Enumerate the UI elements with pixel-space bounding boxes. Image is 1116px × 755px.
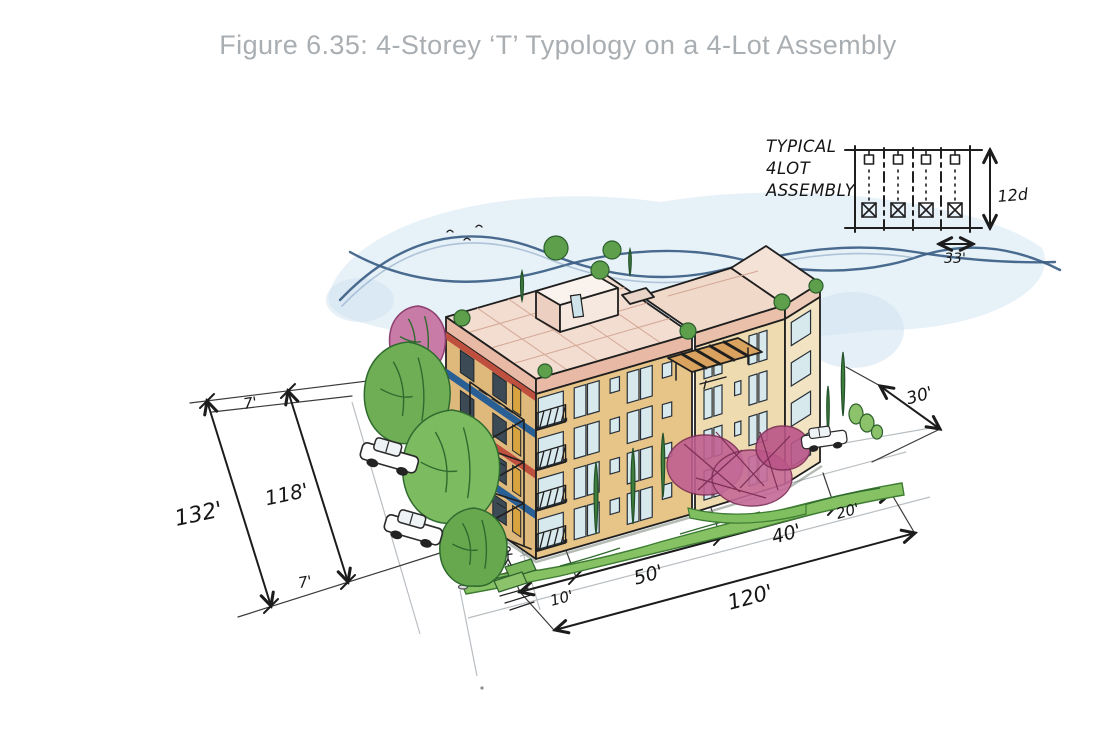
roof-cypress-1 bbox=[521, 271, 524, 301]
roof-cypress-2 bbox=[629, 249, 632, 275]
inset-title-line1: TYPICAL bbox=[766, 137, 836, 156]
label-50: 50' bbox=[631, 561, 665, 590]
label-setback-top: 7' bbox=[242, 393, 258, 413]
sky-wash-left bbox=[326, 278, 394, 322]
inset-title-line3: ASSEMBLY bbox=[765, 181, 857, 200]
tick bbox=[341, 575, 355, 589]
cypress-right-1 bbox=[841, 352, 844, 416]
tick bbox=[264, 599, 278, 613]
label-30: 30' bbox=[904, 383, 935, 409]
label-10: 10' bbox=[548, 586, 575, 609]
sketch-canvas: 7' 132' 118' 7' 10' 50' 40' 20' 120' 30'… bbox=[0, 0, 1116, 755]
inset-depth-label: 12d bbox=[997, 184, 1030, 206]
label-120: 120' bbox=[725, 580, 776, 615]
inset-lot-width-label: 33' bbox=[944, 251, 966, 267]
label-118: 118' bbox=[263, 478, 311, 511]
inset-title-line2: 4LOT bbox=[766, 159, 812, 178]
tree-left-3 bbox=[440, 508, 507, 586]
cypress-front-1 bbox=[594, 462, 598, 534]
extension bbox=[891, 493, 914, 532]
label-132: 132' bbox=[173, 497, 225, 531]
label-setback-bottom: 7' bbox=[297, 572, 314, 592]
cypress-front-3 bbox=[661, 433, 664, 497]
inset-title: TYPICAL 4LOT ASSEMBLY bbox=[765, 137, 857, 200]
bushes-right bbox=[849, 404, 883, 439]
extension bbox=[846, 367, 884, 388]
cypress-front-2 bbox=[631, 448, 635, 524]
figure-page: Figure 6.35: 4-Storey ‘T’ Typology on a … bbox=[0, 0, 1116, 755]
